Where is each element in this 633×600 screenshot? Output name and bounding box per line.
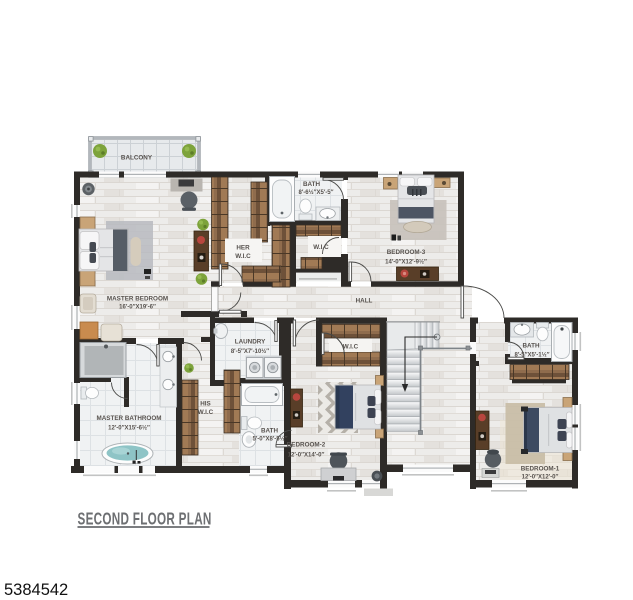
svg-text:BATH: BATH: [522, 343, 539, 350]
svg-text:14′-0″X12′-9½″: 14′-0″X12′-9½″: [385, 259, 427, 266]
svg-text:5′-0″X8′-5½″: 5′-0″X8′-5½″: [253, 436, 288, 443]
svg-text:5384542: 5384542: [4, 581, 68, 599]
svg-text:W.I.C: W.I.C: [198, 409, 214, 416]
svg-text:BATH: BATH: [303, 181, 320, 188]
svg-text:BEDROOM-3: BEDROOM-3: [387, 249, 426, 256]
svg-text:HALL: HALL: [356, 298, 373, 305]
svg-text:W.I.C: W.I.C: [343, 344, 359, 351]
svg-text:12′-0″X15′-6½″: 12′-0″X15′-6½″: [108, 425, 150, 432]
svg-text:BEDROOM-2: BEDROOM-2: [287, 442, 326, 449]
svg-text:LAUNDRY: LAUNDRY: [235, 339, 266, 346]
svg-text:HIS: HIS: [200, 401, 211, 408]
svg-text:MASTER BATHROOM: MASTER BATHROOM: [97, 415, 162, 422]
svg-text:MASTER BEDROOM: MASTER BEDROOM: [107, 296, 168, 303]
svg-text:8′-6½″X5′-5″: 8′-6½″X5′-5″: [299, 189, 334, 196]
svg-text:BEDROOM-1: BEDROOM-1: [521, 466, 560, 473]
svg-text:W.I.C: W.I.C: [235, 253, 251, 260]
svg-text:8′-5″X7′-10½″: 8′-5″X7′-10½″: [231, 348, 269, 355]
svg-text:BATH: BATH: [261, 428, 278, 435]
svg-text:12′-0″X14′-0″: 12′-0″X14′-0″: [288, 453, 325, 459]
svg-text:HER: HER: [236, 245, 250, 252]
svg-text:W.I.C: W.I.C: [313, 244, 329, 251]
svg-text:12′-0″X12′-0″: 12′-0″X12′-0″: [522, 475, 559, 481]
svg-text:BALCONY: BALCONY: [121, 155, 153, 162]
svg-text:16′-0″X19′-6″: 16′-0″X19′-6″: [119, 305, 156, 311]
svg-text:8′-5″X5′-1½″: 8′-5″X5′-1½″: [515, 352, 550, 359]
